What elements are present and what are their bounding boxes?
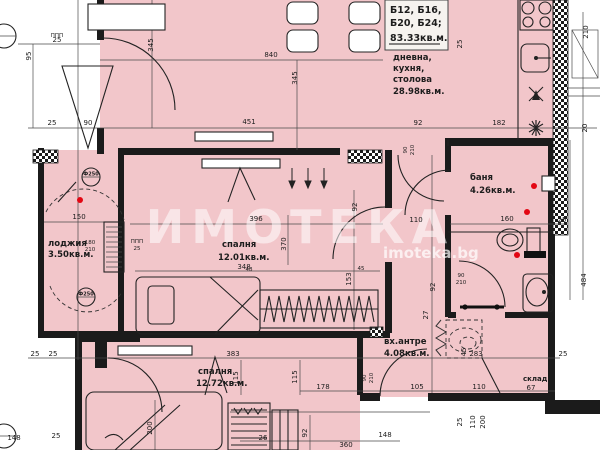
room-area: 28.98кв.м.	[393, 87, 444, 97]
watermark: ИМОТЕКА imoteka.bg	[146, 200, 479, 262]
dim: 840	[264, 51, 277, 59]
total-area: 83.33кв.м.	[390, 33, 448, 44]
chair	[349, 2, 380, 24]
dim: 178	[316, 383, 329, 391]
dim: 150	[72, 213, 85, 221]
floorplan-canvas: Ф250 Ф250 ИМОТЕКА imoteka.bg Б12, Б16, Б…	[0, 0, 600, 450]
floorplan-svg: Ф250 Ф250 ИМОТЕКА imoteka.bg Б12, Б16, Б…	[0, 0, 600, 450]
dim: 180	[85, 240, 96, 246]
room-name: лоджия	[48, 239, 87, 249]
storage-label: склад	[523, 375, 548, 383]
dim: 25	[559, 350, 568, 358]
dim: 110	[409, 216, 422, 224]
dim: 92	[301, 429, 309, 438]
chair	[287, 30, 318, 52]
room-name: спалня	[198, 367, 232, 377]
unit-list-2: Б20, Б24;	[390, 18, 442, 29]
room-area: 4.08кв.м.	[384, 349, 430, 359]
hatched-wall-mid	[348, 150, 382, 163]
dim: 160	[500, 215, 513, 223]
dim: 45	[460, 348, 468, 357]
shelf-bottom	[202, 159, 280, 168]
electric-point	[77, 197, 83, 203]
dim: 182	[492, 119, 505, 127]
dim: 25	[456, 418, 464, 427]
dim: 396	[249, 215, 263, 223]
unit-list-1: Б12, Б16,	[390, 5, 441, 16]
dim: 92	[429, 283, 437, 292]
room-area: 4.26кв.м.	[470, 186, 516, 196]
dim: 90	[458, 273, 465, 279]
room-name: кухня,	[393, 64, 424, 74]
dim: 45	[358, 266, 365, 272]
room-name: спалня	[222, 240, 256, 250]
watermark-site: imoteka.bg	[383, 244, 479, 262]
dim: 20	[581, 124, 589, 133]
room-name: баня	[470, 172, 493, 183]
dim: 115	[291, 370, 299, 383]
electric-point	[514, 252, 520, 258]
elevation-marker-top	[0, 24, 16, 48]
dim: 25	[456, 40, 464, 49]
dim: 25	[558, 216, 567, 224]
dim: 200	[146, 421, 154, 434]
dim: 25	[31, 350, 40, 358]
dim: 148	[7, 434, 20, 442]
dim: 210	[456, 280, 467, 286]
dim: 484	[580, 273, 588, 287]
dim: 360	[339, 441, 352, 449]
dim: 210	[85, 247, 96, 253]
dim: 26	[259, 434, 268, 442]
shelf-top	[195, 132, 273, 141]
dim: 110	[472, 383, 485, 391]
electric-point	[524, 209, 530, 215]
dim: 153	[345, 272, 353, 285]
dim: 210	[410, 144, 416, 155]
dim: 92	[414, 119, 423, 127]
dim: 200	[479, 415, 487, 428]
dim: 90	[95, 350, 104, 358]
annotation: ППП	[131, 239, 143, 245]
annotation: ППП	[51, 33, 63, 39]
boiler	[542, 176, 555, 191]
dim: 95	[25, 52, 33, 61]
dim: 90	[84, 119, 93, 127]
column-label: Ф250	[83, 172, 99, 178]
chair	[349, 30, 380, 52]
column-label: Ф250	[78, 292, 94, 298]
title-block: Б12, Б16, Б20, Б24; 83.33кв.м.	[385, 0, 448, 50]
dim: 90	[362, 374, 368, 381]
room-area: 12.01кв.м.	[218, 253, 269, 263]
dim: 115	[232, 371, 240, 384]
dim: 25	[52, 432, 61, 440]
dim: 25	[49, 350, 58, 358]
dim: 283	[469, 350, 482, 358]
dim: 25	[48, 119, 57, 127]
dim: 451	[242, 118, 255, 126]
shelf-bedroom2	[118, 346, 192, 355]
dim: 67	[527, 384, 536, 392]
room-living	[100, 0, 555, 152]
room-name: вх.антре	[384, 337, 427, 347]
dim: 148	[378, 431, 391, 439]
electric-point	[531, 183, 537, 189]
hatched-wall-right	[553, 0, 568, 235]
dim: 105	[410, 383, 423, 391]
dim: 110	[469, 415, 477, 428]
dim: 370	[280, 237, 288, 250]
dim: 48	[246, 267, 253, 273]
towel-rail	[524, 251, 546, 258]
chair	[287, 2, 318, 24]
dim: 210	[369, 372, 375, 383]
room-name: дневна,	[393, 53, 432, 63]
dim: 90	[403, 146, 409, 153]
cabinet	[88, 4, 165, 30]
dim: 25	[134, 246, 141, 252]
dim: 345	[147, 38, 155, 51]
dim: 27	[422, 311, 430, 320]
dim: 383	[226, 350, 239, 358]
dim: 92	[351, 203, 359, 212]
room-name: столова	[393, 75, 432, 85]
dim: 210	[582, 25, 590, 38]
dim: 345	[291, 71, 299, 84]
hatched-wall-left	[33, 150, 58, 163]
